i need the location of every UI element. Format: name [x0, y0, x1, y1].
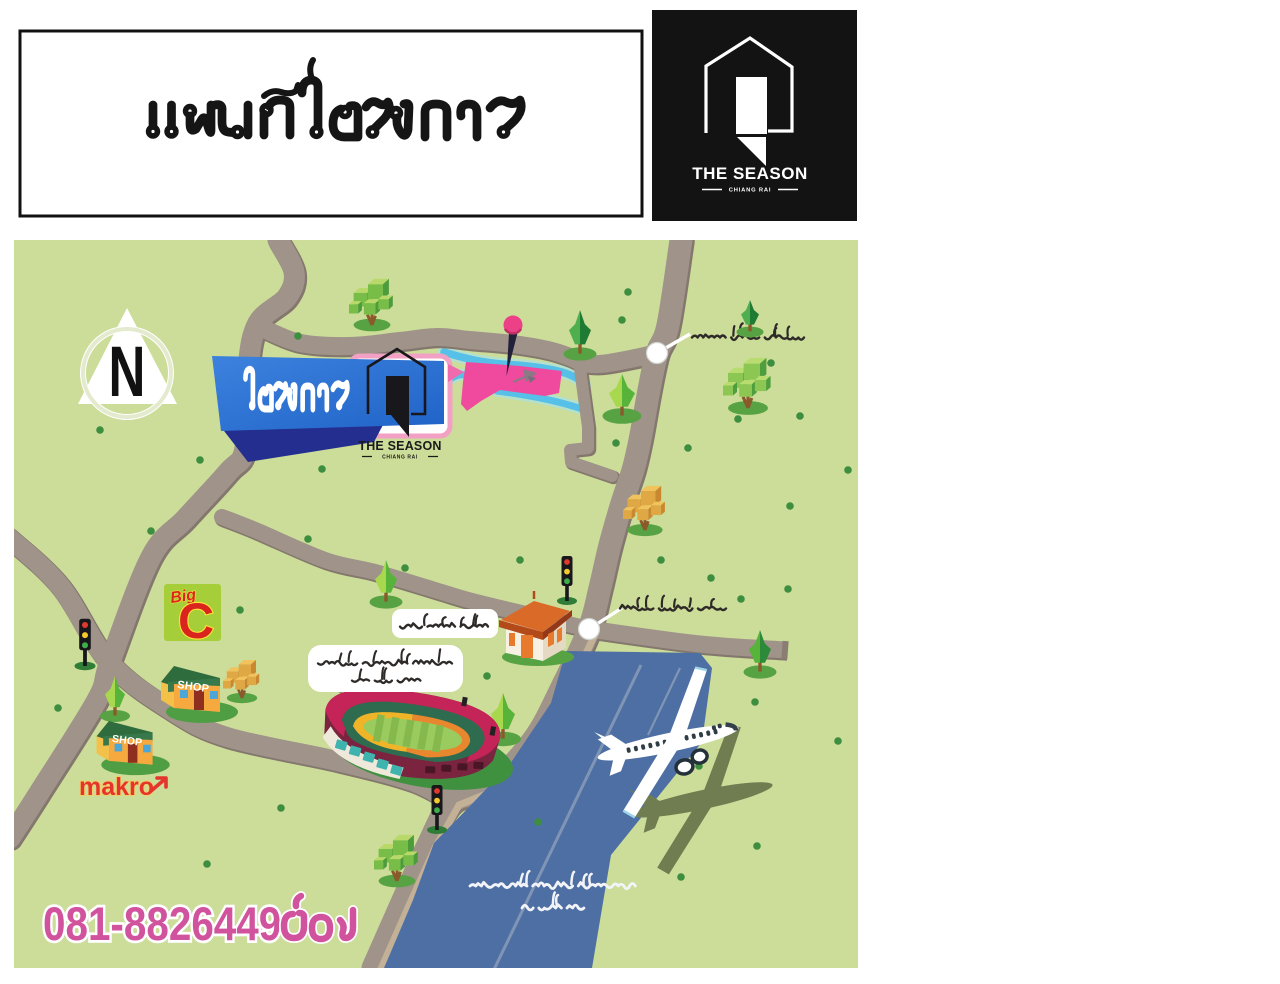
svg-text:N: N [109, 333, 146, 412]
svg-text:CHIANG RAI: CHIANG RAI [729, 188, 771, 194]
svg-text:CHIANG RAI: CHIANG RAI [382, 455, 418, 461]
svg-text:C: C [178, 593, 214, 649]
svg-text:THE SEASON: THE SEASON [358, 439, 441, 453]
svg-text:makro: makro [79, 773, 154, 801]
svg-text:THE SEASON: THE SEASON [692, 164, 808, 183]
svg-text:081-8826449: 081-8826449 [43, 898, 281, 951]
